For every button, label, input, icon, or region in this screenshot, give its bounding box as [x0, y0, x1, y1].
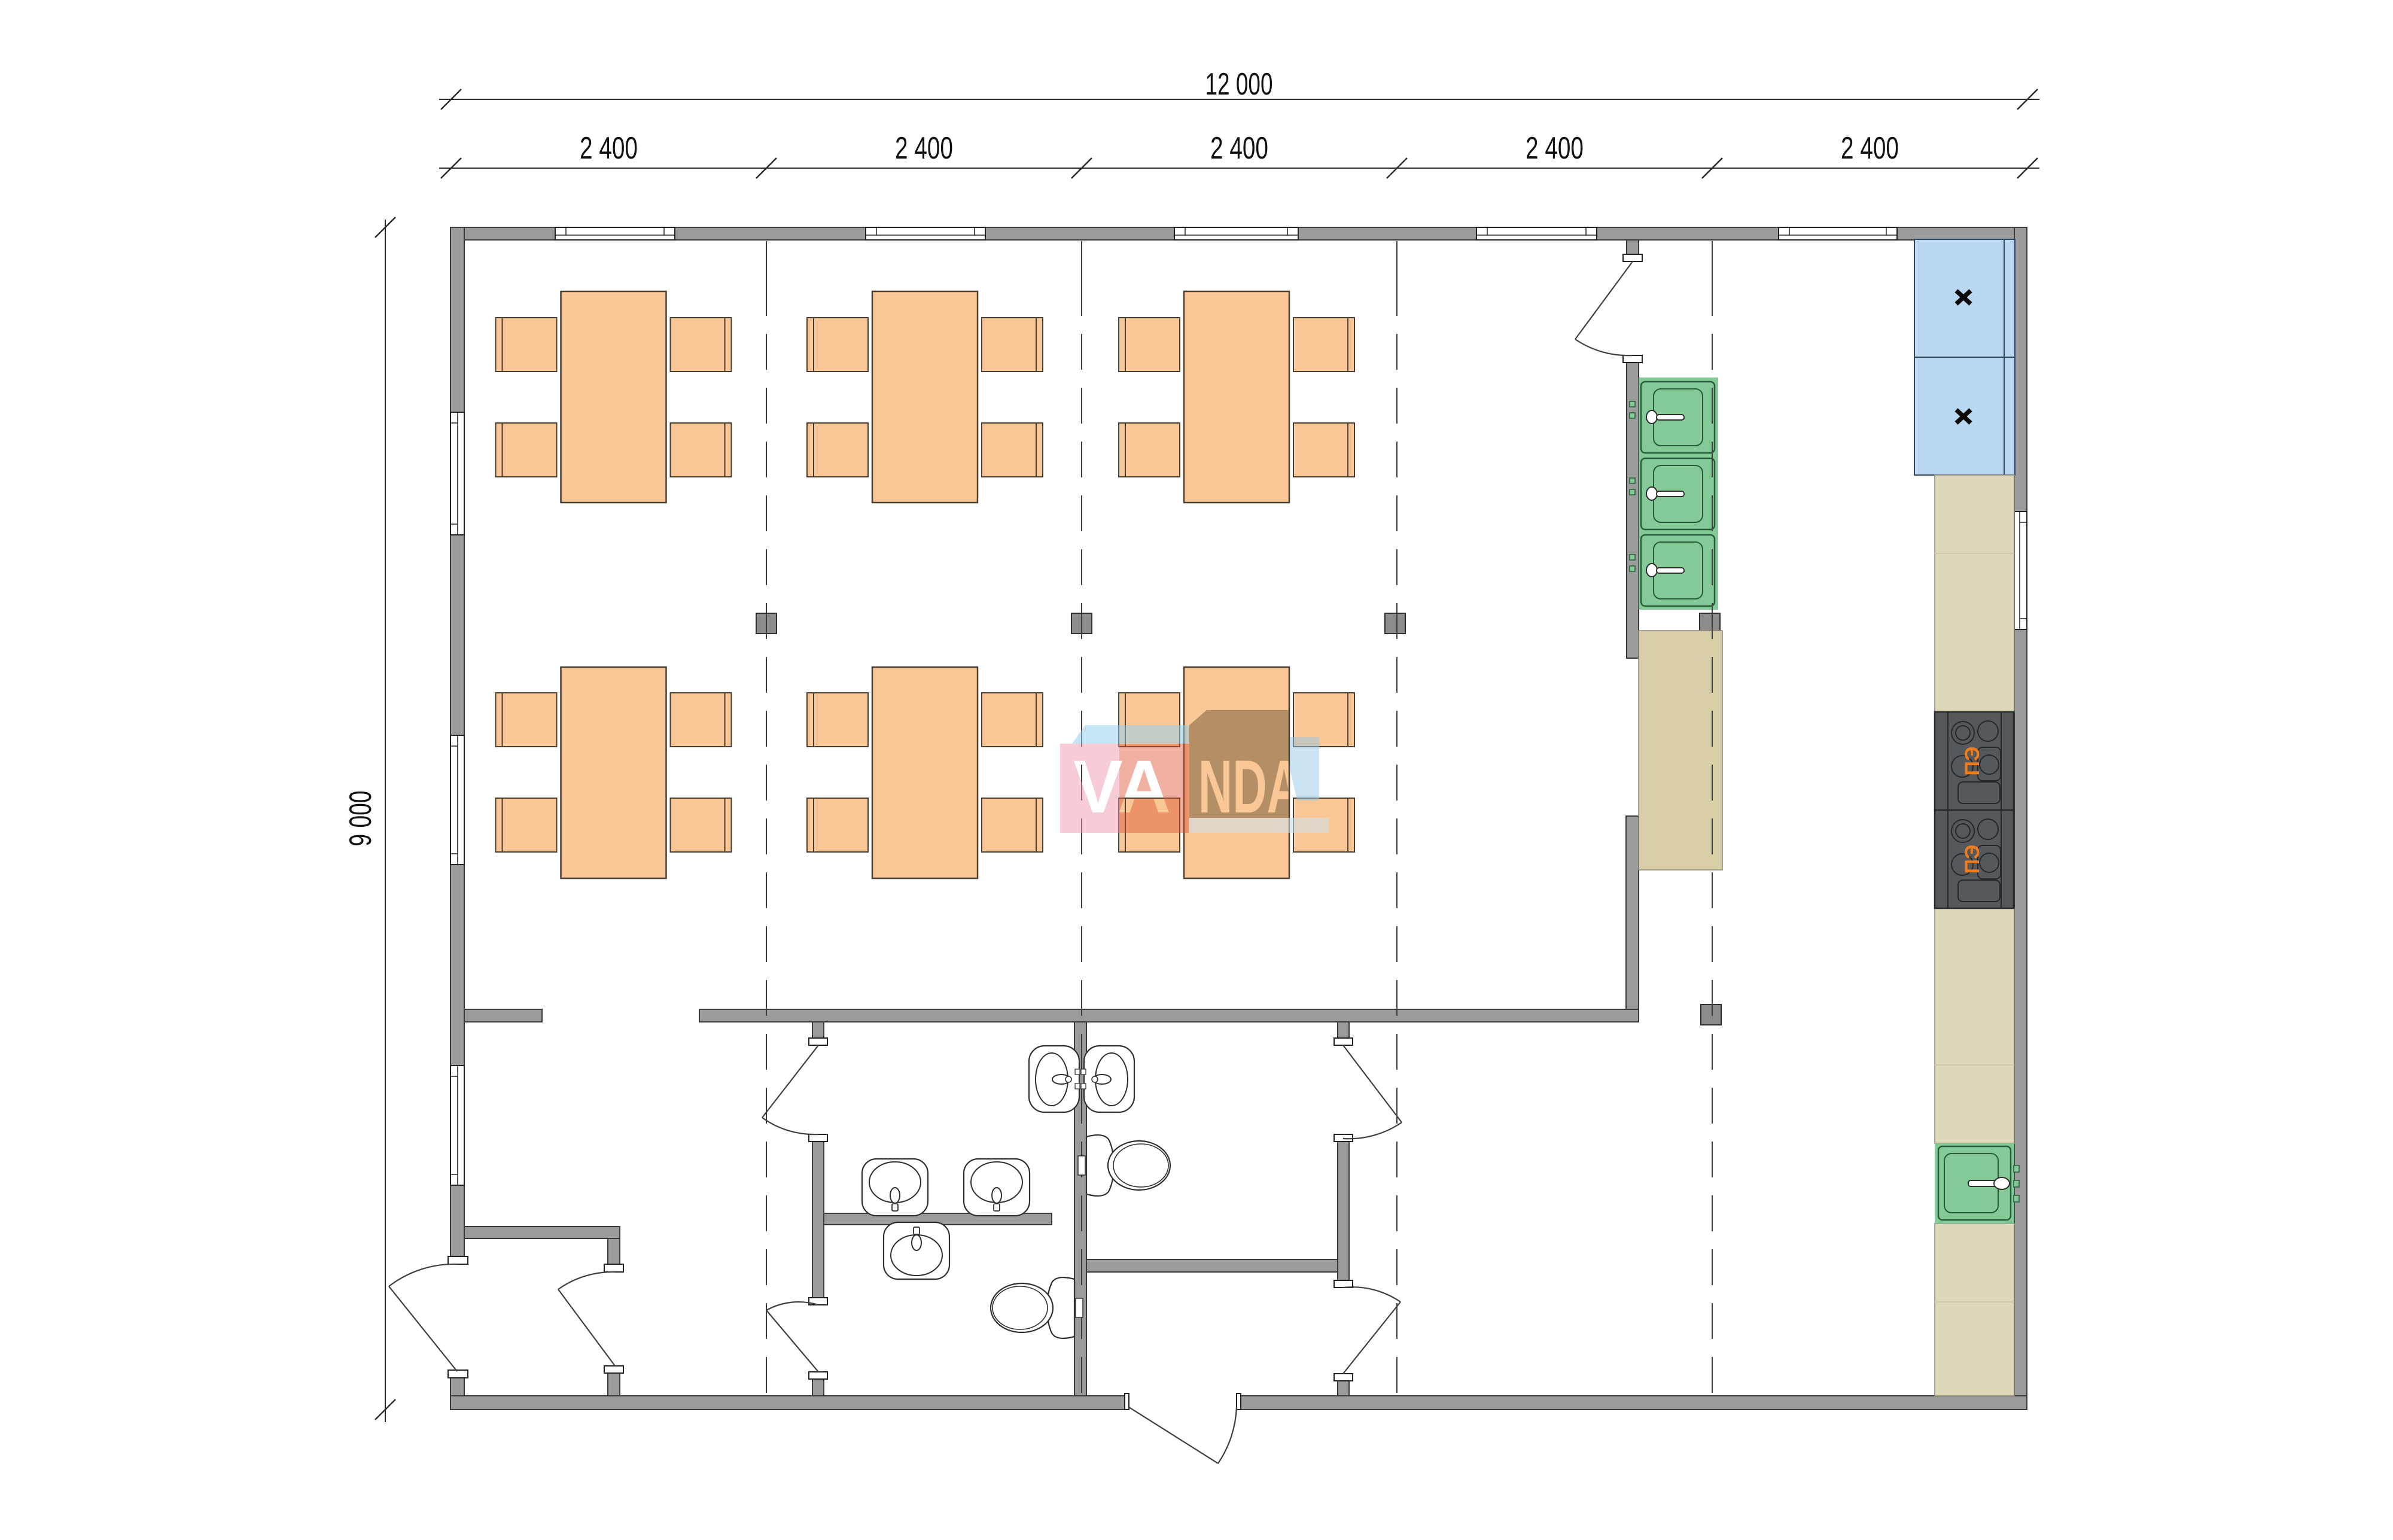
- svg-text:ПЭ: ПЭ: [1961, 845, 1984, 874]
- svg-text:2 400: 2 400: [895, 131, 953, 166]
- svg-text:12 000: 12 000: [1205, 67, 1273, 102]
- svg-text:9 000: 9 000: [343, 791, 378, 847]
- svg-text:ПЭ: ПЭ: [1961, 747, 1984, 776]
- svg-text:2 400: 2 400: [1526, 131, 1584, 166]
- svg-text:2 400: 2 400: [1841, 131, 1899, 166]
- svg-text:2 400: 2 400: [580, 131, 638, 166]
- svg-text:2 400: 2 400: [1210, 131, 1268, 166]
